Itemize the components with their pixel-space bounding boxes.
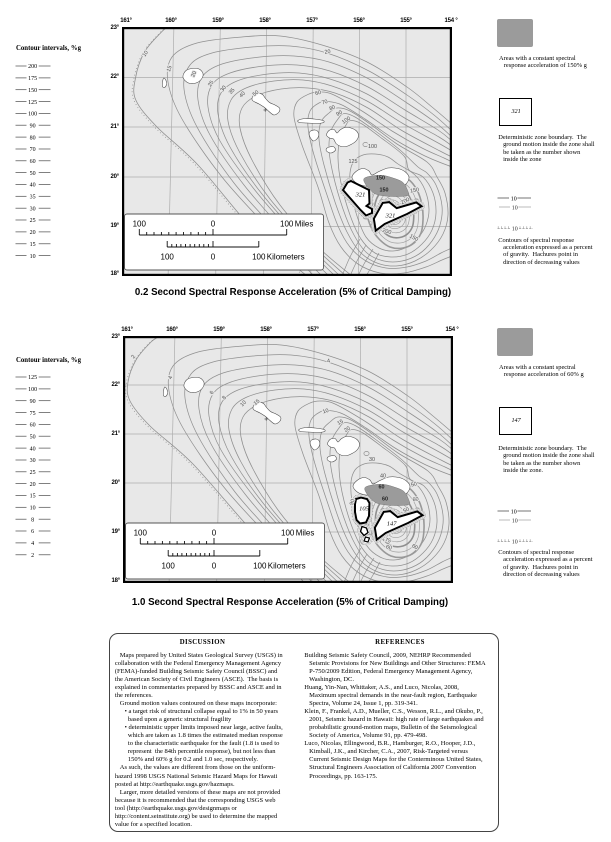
svg-text:90: 90 [30, 124, 36, 130]
svg-text:Kilometers: Kilometers [268, 562, 306, 571]
svg-text:75: 75 [30, 411, 36, 417]
svg-text:100: 100 [28, 387, 37, 393]
svg-text:90: 90 [30, 399, 36, 405]
svg-text:40: 40 [30, 446, 36, 452]
svg-text:100: 100 [281, 529, 295, 538]
svg-text:50: 50 [30, 434, 36, 440]
svg-text:60: 60 [315, 90, 322, 97]
svg-text:100: 100 [134, 529, 148, 538]
svg-text:0: 0 [212, 562, 217, 571]
svg-text:Miles: Miles [296, 529, 315, 538]
svg-text:60: 60 [382, 496, 388, 502]
svg-text:30: 30 [30, 207, 36, 213]
svg-text:25: 25 [30, 219, 36, 225]
svg-text:8: 8 [31, 517, 34, 523]
svg-text:40: 40 [30, 183, 36, 189]
svg-text:60: 60 [30, 159, 36, 165]
svg-text:321: 321 [385, 212, 396, 219]
svg-text:100: 100 [28, 112, 37, 118]
svg-text:2: 2 [31, 553, 34, 559]
svg-text:50: 50 [30, 171, 36, 177]
svg-text:10: 10 [512, 227, 518, 233]
svg-text:0: 0 [211, 220, 216, 229]
svg-text:125: 125 [28, 100, 37, 106]
svg-text:147: 147 [387, 521, 398, 528]
svg-text:10: 10 [511, 509, 517, 515]
svg-text:100: 100 [162, 562, 176, 571]
svg-text:200: 200 [28, 65, 37, 71]
svg-text:100: 100 [368, 144, 377, 150]
svg-text:70: 70 [30, 148, 36, 154]
svg-text:125: 125 [349, 159, 358, 165]
svg-text:10: 10 [512, 518, 518, 524]
svg-text:20: 20 [30, 230, 36, 236]
svg-text:Kilometers: Kilometers [267, 253, 305, 262]
svg-text:20: 20 [324, 49, 331, 56]
svg-text:30: 30 [30, 458, 36, 464]
svg-text:150: 150 [376, 175, 385, 181]
svg-text:105: 105 [359, 505, 370, 512]
svg-text:60: 60 [412, 496, 419, 503]
svg-text:6: 6 [31, 529, 34, 535]
svg-text:25: 25 [30, 470, 36, 476]
svg-text:Miles: Miles [295, 220, 314, 229]
svg-text:4: 4 [31, 541, 34, 547]
svg-text:100: 100 [252, 253, 266, 262]
svg-text:10: 10 [512, 205, 518, 211]
svg-text:0: 0 [211, 253, 216, 262]
svg-text:10: 10 [30, 505, 36, 511]
svg-text:15: 15 [30, 494, 36, 500]
svg-text:60: 60 [30, 423, 36, 429]
svg-text:100: 100 [280, 220, 294, 229]
svg-text:20: 20 [30, 482, 36, 488]
svg-text:175: 175 [28, 76, 37, 82]
svg-text:150: 150 [28, 88, 37, 94]
svg-text:100: 100 [253, 562, 267, 571]
svg-text:10: 10 [30, 254, 36, 260]
svg-text:15: 15 [30, 242, 36, 248]
svg-text:40: 40 [380, 474, 386, 480]
svg-text:100: 100 [161, 253, 175, 262]
svg-text:10: 10 [512, 539, 518, 545]
svg-text:80: 80 [30, 136, 36, 142]
svg-text:321: 321 [355, 192, 366, 199]
svg-text:30: 30 [369, 457, 375, 463]
svg-text:125: 125 [28, 375, 37, 381]
svg-text:35: 35 [30, 195, 36, 201]
svg-text:150: 150 [380, 187, 389, 193]
svg-text:10: 10 [511, 196, 517, 202]
svg-text:0: 0 [212, 529, 217, 538]
svg-text:100: 100 [133, 220, 147, 229]
svg-text:60: 60 [379, 484, 385, 490]
